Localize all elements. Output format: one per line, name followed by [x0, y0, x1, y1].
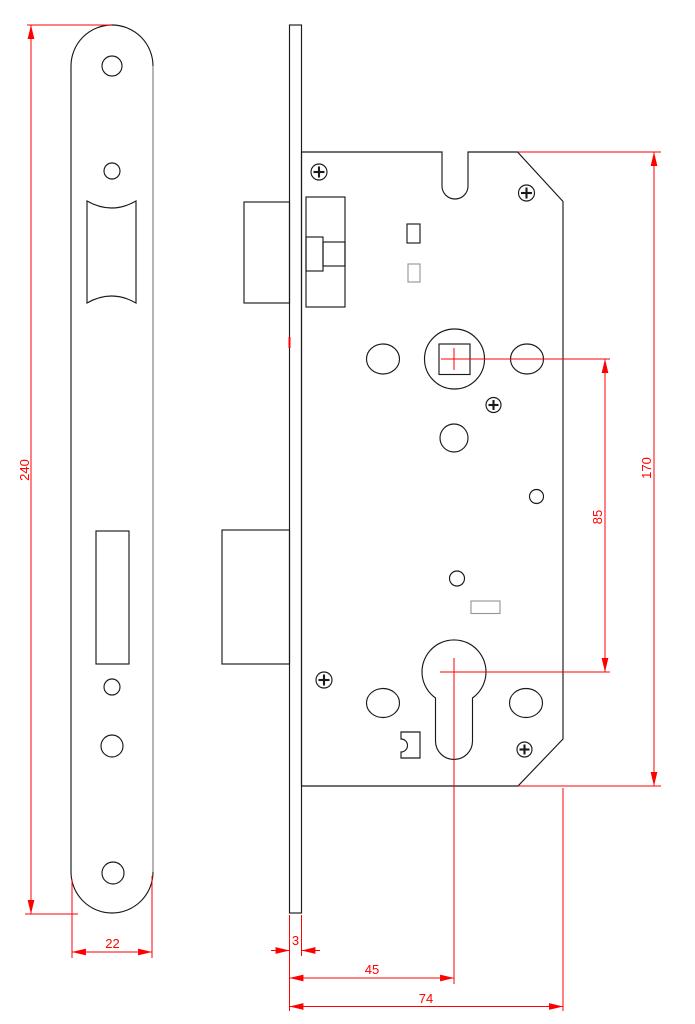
latch-bolt — [244, 197, 345, 307]
deadbolt — [222, 530, 290, 664]
deadbolt-head — [222, 530, 290, 664]
case-slot-upper — [407, 224, 420, 243]
phillips-screw-icon — [517, 742, 532, 757]
lock-case — [302, 152, 564, 786]
dim-label-45: 45 — [365, 962, 379, 977]
plate-hole-mid-bottom — [101, 735, 123, 757]
dim-case-height: 170 — [518, 152, 661, 786]
center-lines — [440, 348, 610, 984]
dim-label-240: 240 — [17, 459, 32, 481]
deadbolt-cutout — [96, 531, 129, 664]
dim-label-170: 170 — [639, 457, 654, 479]
dim-label-3: 3 — [292, 933, 299, 948]
dim-label-85: 85 — [590, 510, 605, 524]
phillips-screw-icon — [316, 672, 332, 688]
strike-plate — [71, 25, 153, 913]
mortise-lock-drawing: 240 22 3 45 74 170 85 — [0, 0, 695, 1024]
plate-screw-hole-top — [102, 56, 122, 76]
phillips-screw-icon — [311, 164, 327, 180]
case-hole-small-right — [530, 490, 544, 504]
case-slot-lower — [471, 601, 500, 614]
latch-step — [306, 237, 323, 271]
latch-body — [306, 197, 345, 307]
plate-screw-hole-bottom — [102, 862, 124, 884]
case-hole-center — [440, 424, 468, 452]
strike-plate-outline — [71, 25, 153, 913]
dim-label-22: 22 — [105, 936, 119, 951]
case-hole-small-mid — [450, 571, 465, 586]
dim-centre-distance: 85 — [590, 359, 605, 672]
dim-plate-width: 22 — [72, 876, 152, 958]
plate-small-hole-upper — [104, 163, 120, 179]
dim-plate-height: 240 — [17, 25, 112, 914]
dim-faceplate-thickness: 3 — [271, 915, 320, 1011]
phillips-screw-icon — [486, 398, 501, 413]
plate-small-hole-lower — [104, 679, 120, 695]
faceplate-edge — [290, 25, 302, 913]
phillips-screw-icon — [519, 185, 535, 201]
latch-tail — [323, 242, 345, 266]
dim-backset: 45 — [290, 962, 455, 978]
case-hole-left-lower — [367, 689, 400, 718]
bracket-cutout — [401, 732, 420, 758]
latch-head — [244, 202, 290, 303]
latch-cutout — [87, 201, 136, 303]
lock-case-outline — [302, 152, 564, 786]
case-slot-upper-2 — [408, 264, 420, 282]
technical-drawing-page: 240 22 3 45 74 170 85 — [0, 0, 695, 1024]
faceplate-strip — [290, 25, 302, 913]
case-hole-right-lower — [510, 689, 543, 718]
dim-label-74: 74 — [419, 991, 433, 1006]
case-hole-left-upper — [367, 344, 400, 374]
